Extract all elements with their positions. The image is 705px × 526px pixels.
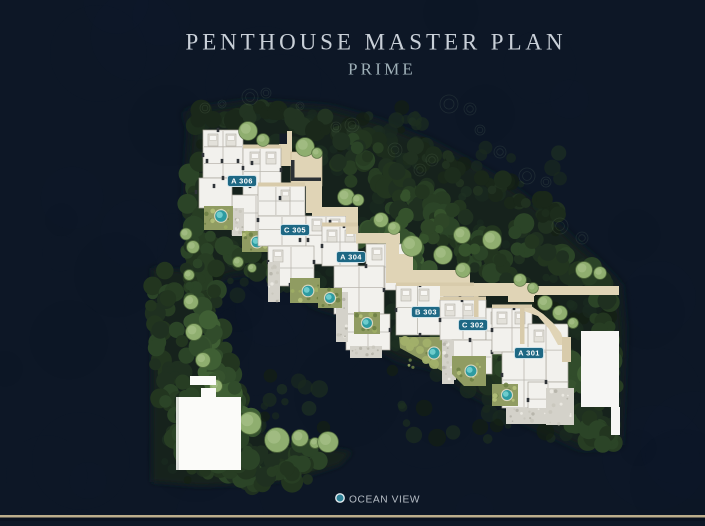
svg-text:OCEAN VIEW: OCEAN VIEW bbox=[349, 495, 420, 506]
svg-text:C 305: C 305 bbox=[284, 226, 306, 235]
svg-text:PENTHOUSE MASTER PLAN: PENTHOUSE MASTER PLAN bbox=[186, 30, 567, 55]
svg-text:C 302: C 302 bbox=[462, 321, 484, 330]
svg-text:A 306: A 306 bbox=[231, 177, 253, 186]
svg-text:A 301: A 301 bbox=[518, 349, 540, 358]
svg-text:A 304: A 304 bbox=[340, 253, 362, 262]
svg-text:B 303: B 303 bbox=[415, 308, 437, 317]
svg-text:PRIME: PRIME bbox=[348, 60, 416, 79]
